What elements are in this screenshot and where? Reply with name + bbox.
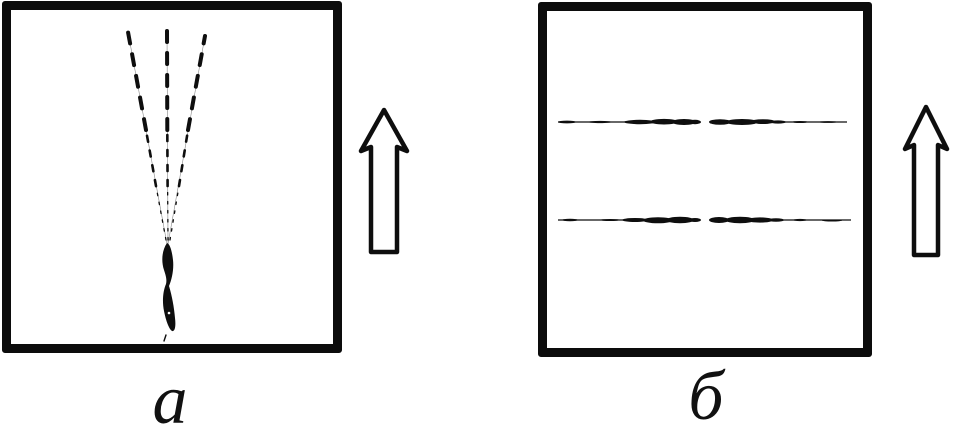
panel-b-label: б [674,362,738,432]
panel-a-frame [2,1,342,353]
up-arrow-icon [905,107,947,255]
panel-a-label: а [138,366,202,434]
panel-b-frame [538,2,872,357]
figure-canvas: а б [0,0,958,434]
up-arrow-icon [361,110,407,252]
